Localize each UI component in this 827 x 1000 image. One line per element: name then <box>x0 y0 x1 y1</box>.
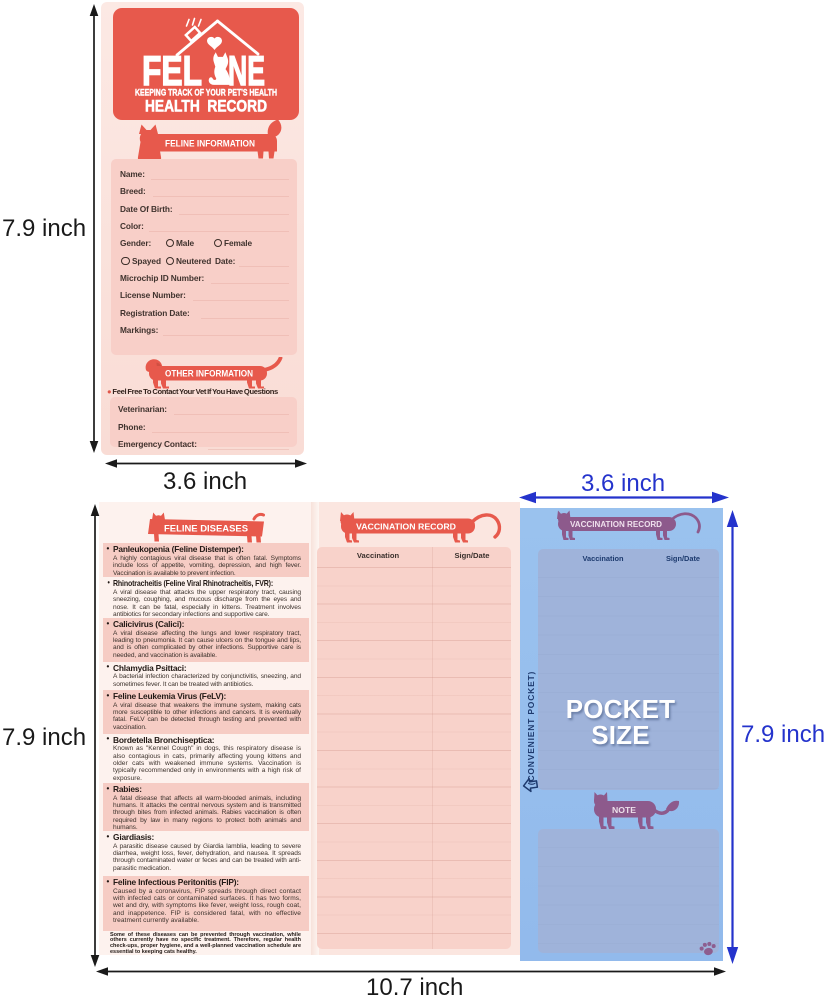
svg-text:OTHER INFORMATION: OTHER INFORMATION <box>165 369 253 379</box>
svg-text:FELINE INFORMATION: FELINE INFORMATION <box>165 139 255 150</box>
svg-text:VACCINATION RECORD: VACCINATION RECORD <box>356 521 456 531</box>
svg-text:VACCINATION RECORD: VACCINATION RECORD <box>570 520 662 529</box>
svg-text:FELINE DISEASES: FELINE DISEASES <box>164 523 248 533</box>
svg-text:NOTE: NOTE <box>612 806 637 815</box>
svg-text:HEALTH RECORD: HEALTH RECORD <box>145 97 267 116</box>
